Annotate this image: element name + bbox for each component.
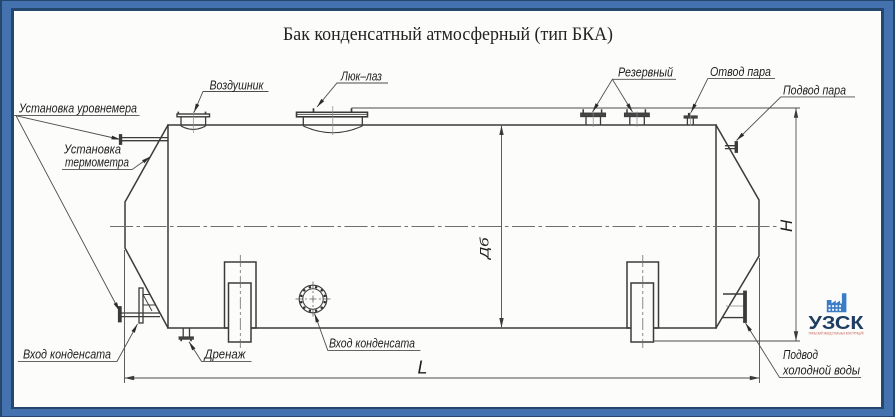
svg-text:Вход конденсата: Вход конденсата xyxy=(329,337,415,351)
svg-text:Отвод пара: Отвод пара xyxy=(710,65,771,79)
svg-text:L: L xyxy=(418,358,428,378)
svg-text:Подвод: Подвод xyxy=(783,348,818,362)
svg-text:Дб: Дб xyxy=(478,236,492,261)
svg-text:холодной воды: холодной воды xyxy=(782,364,860,378)
svg-text:УРАЛЬСКИЙ ЗАВОД СТАЛЬНЫХ КОНСТ: УРАЛЬСКИЙ ЗАВОД СТАЛЬНЫХ КОНСТРУКЦИЙ xyxy=(809,332,864,336)
svg-text:Установка: Установка xyxy=(63,143,121,157)
svg-text:H: H xyxy=(777,219,796,232)
svg-text:Подвод пара: Подвод пара xyxy=(783,84,846,98)
svg-text:УЗСК: УЗСК xyxy=(809,312,865,333)
svg-text:Воздушник: Воздушник xyxy=(210,79,265,93)
svg-text:Дренаж: Дренаж xyxy=(203,348,247,362)
svg-text:термометра: термометра xyxy=(65,156,129,170)
svg-text:Люк–лаз: Люк–лаз xyxy=(340,70,382,84)
svg-text:Бак конденсатный атмосферный (: Бак конденсатный атмосферный (тип БКА) xyxy=(283,24,613,45)
svg-text:Установка уровнемера: Установка уровнемера xyxy=(18,102,137,116)
svg-text:Вход конденсата: Вход конденсата xyxy=(23,348,111,362)
svg-text:Резервный: Резервный xyxy=(618,66,673,80)
